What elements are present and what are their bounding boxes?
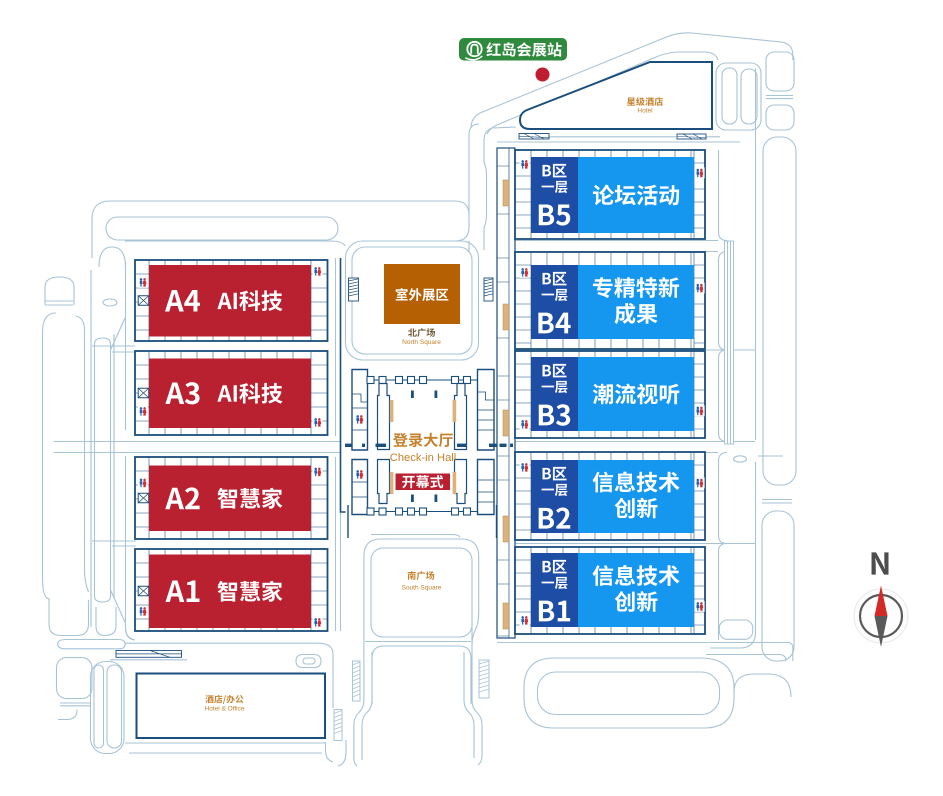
svg-text:Check-in Hall: Check-in Hall (390, 452, 457, 464)
svg-text:Hotel & Office: Hotel & Office (205, 706, 245, 713)
svg-text:North Square: North Square (402, 339, 441, 346)
svg-text:South Square: South Square (402, 585, 442, 592)
svg-text:Hotel: Hotel (637, 108, 653, 115)
